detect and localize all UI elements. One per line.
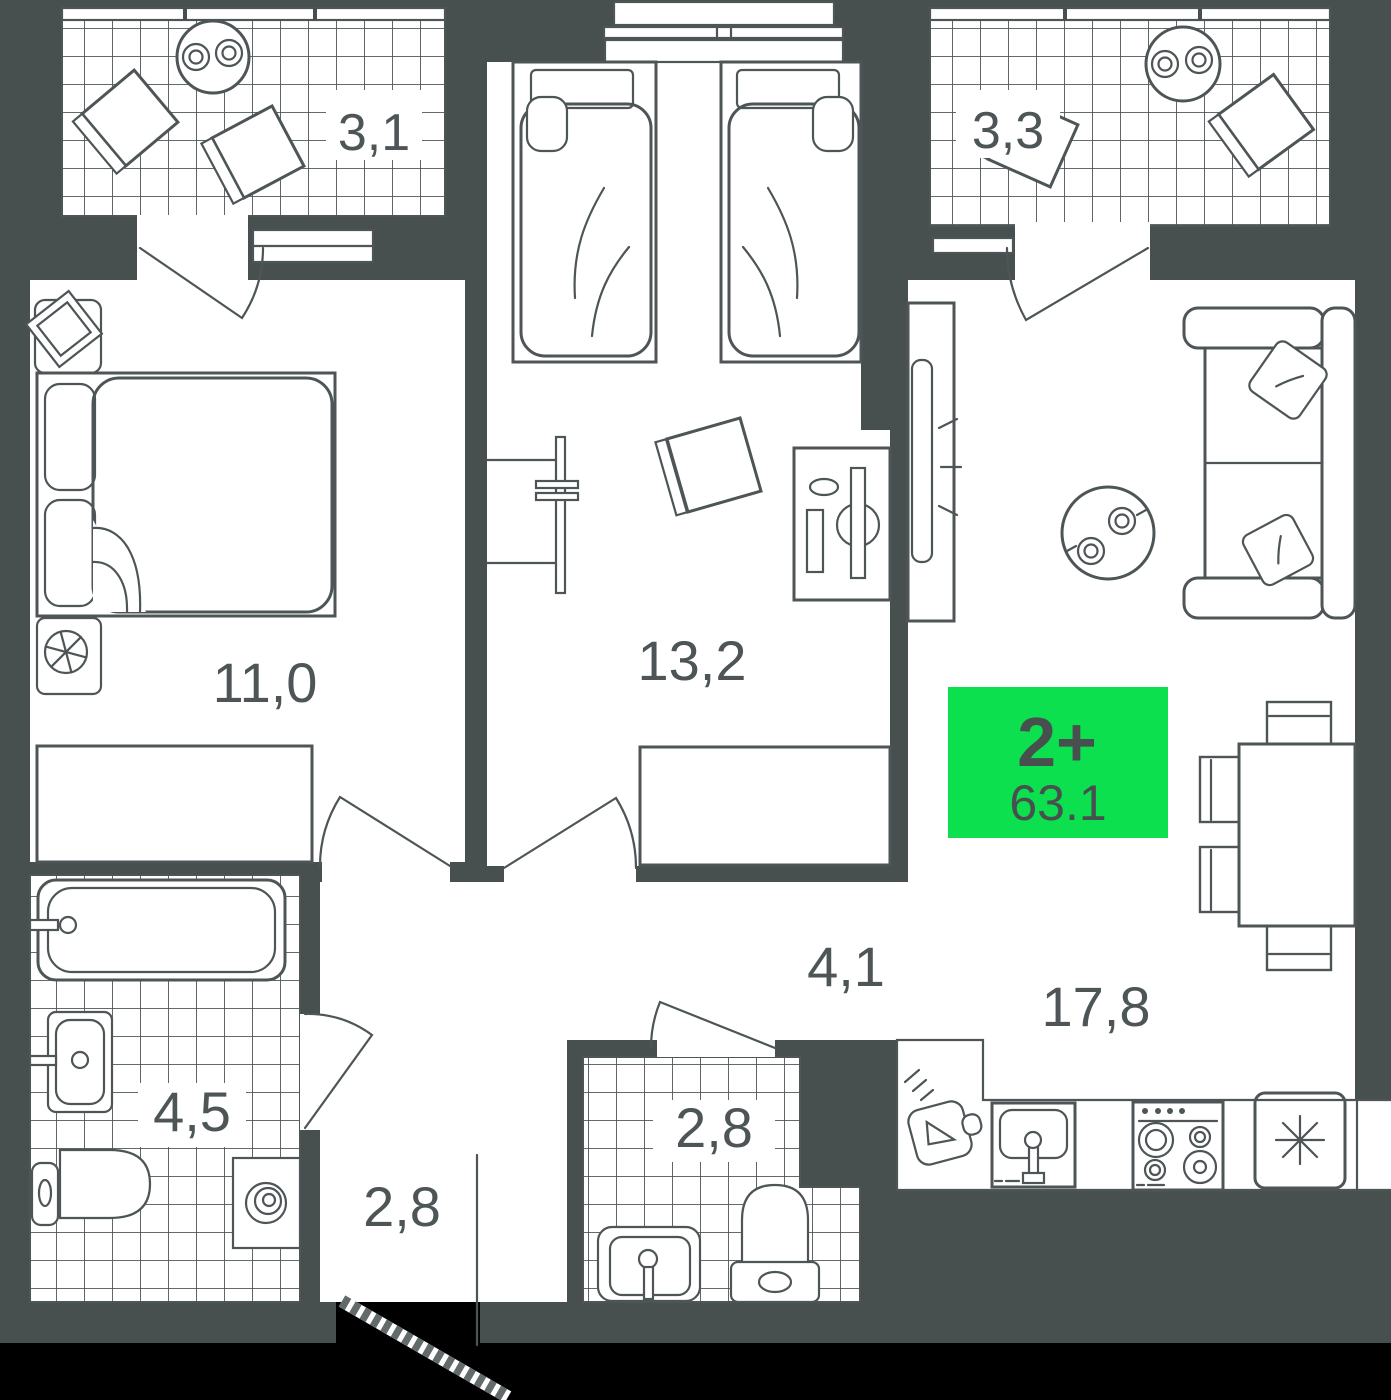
room-entry: [320, 1040, 567, 1302]
outside-area: [0, 1343, 1391, 1400]
wc-toilet: [731, 1185, 819, 1302]
washing-machine: [233, 1158, 300, 1248]
dining-chair: [1200, 847, 1240, 912]
badge-rooms-count: 2+: [1017, 703, 1097, 781]
area-label-bedroom: 13,2: [638, 629, 747, 692]
badge-total-area: 63.1: [1009, 775, 1106, 831]
floor-plan: 3,1 3,3 13,2 11,0 17,8 4,5 4,1 2,8 2,8 2…: [0, 0, 1391, 1400]
area-label-wc: 2,8: [675, 1096, 753, 1159]
cup-icon: [216, 40, 242, 66]
type-area-badge: 2+ 63.1: [948, 687, 1168, 838]
window-living: [933, 238, 1013, 253]
area-label-balcony-left: 3,1: [338, 104, 410, 162]
dining-chair: [1267, 925, 1331, 970]
window-bay: [604, 2, 843, 62]
cup-icon: [1186, 47, 1212, 73]
cup-icon: [1152, 51, 1178, 77]
tv-icon: [912, 360, 932, 562]
bathtub: [30, 880, 285, 980]
cup-icon: [183, 44, 209, 70]
area-label-balcony-right: 3,3: [972, 102, 1044, 160]
wc-sink: [598, 1227, 700, 1301]
coffee-table: [1062, 487, 1154, 579]
dining-chair: [1200, 757, 1240, 822]
area-label-hallway: 4,1: [807, 935, 885, 998]
dining-chair: [1267, 702, 1331, 747]
area-label-living: 17,8: [1042, 975, 1151, 1038]
dining-table: [1239, 744, 1355, 926]
sofa: [1184, 308, 1355, 618]
snowflake-icon: [1276, 1116, 1324, 1164]
area-label-entry: 2,8: [363, 1175, 441, 1238]
area-label-bathroom: 4,5: [153, 1080, 231, 1143]
area-label-master-bedroom: 11,0: [213, 651, 318, 714]
floor-plan-canvas: 3,1 3,3 13,2 11,0 17,8 4,5 4,1 2,8 2,8 2…: [0, 0, 1391, 1400]
